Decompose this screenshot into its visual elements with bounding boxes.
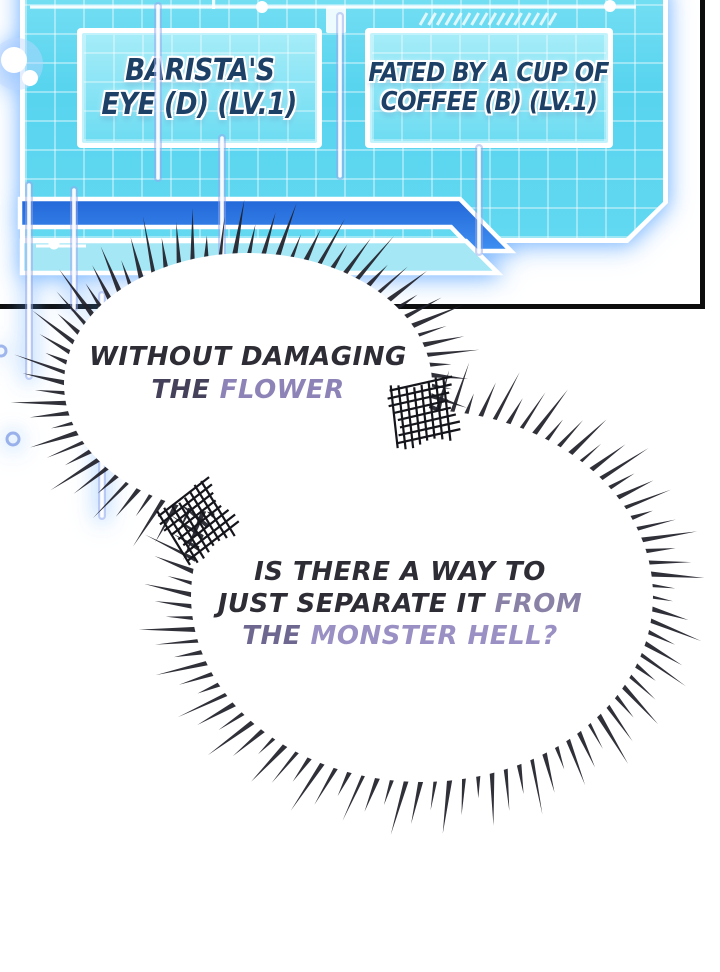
skill-name-line1: FATED BY A CUP OF [369,59,610,88]
ring-decoration [0,346,6,356]
bubble-text-line: IS THERE A WAY TO [175,556,625,588]
bubble-text-segment: FROM [494,589,582,619]
bubble-text-segment: IS THERE A WAY TO [254,557,546,587]
skill-box-baristas-eye: BARISTA'S EYE (D) (LV.1) [77,28,322,148]
bubble-1-text: WITHOUT DAMAGINGTHE FLOWER [58,341,438,407]
bubble-text-segment: MONSTER HELL? [311,621,558,651]
status-panel: BARISTA'S EYE (D) (LV.1) FATED BY A CUP … [0,0,720,560]
skill-name-line2: EYE (D) (LV.1) [102,88,297,122]
bubble-text-line: THE FLOWER [58,374,438,407]
bubble-text-segment: WITHOUT DAMAGING [89,342,407,372]
skill-box-fated-by-a-cup-of-coffee: FATED BY A CUP OF COFFEE (B) (LV.1) [365,28,613,148]
bubble-text-line: WITHOUT DAMAGING [58,341,438,374]
bubble-text-line: THE MONSTER HELL? [175,620,625,652]
bubble-text-segment: JUST SEPARATE IT [218,589,495,619]
bubble-text-segment: FLOWER [220,375,345,405]
bubble-text-segment: THE [151,375,219,405]
skill-box-inner: BARISTA'S EYE (D) (LV.1) [82,33,317,143]
bubble-text-segment: THE [242,621,310,651]
lower-strip [22,241,498,273]
bubble-2-text: IS THERE A WAY TOJUST SEPARATE IT FROMTH… [175,556,625,652]
bubble-text-line: JUST SEPARATE IT FROM [175,588,625,620]
skill-name-line1: BARISTA'S [125,54,274,88]
skill-name-line2: COFFEE (B) (LV.1) [381,88,598,117]
skill-box-inner: FATED BY A CUP OF COFFEE (B) (LV.1) [370,33,608,143]
ring-decoration [7,433,19,445]
